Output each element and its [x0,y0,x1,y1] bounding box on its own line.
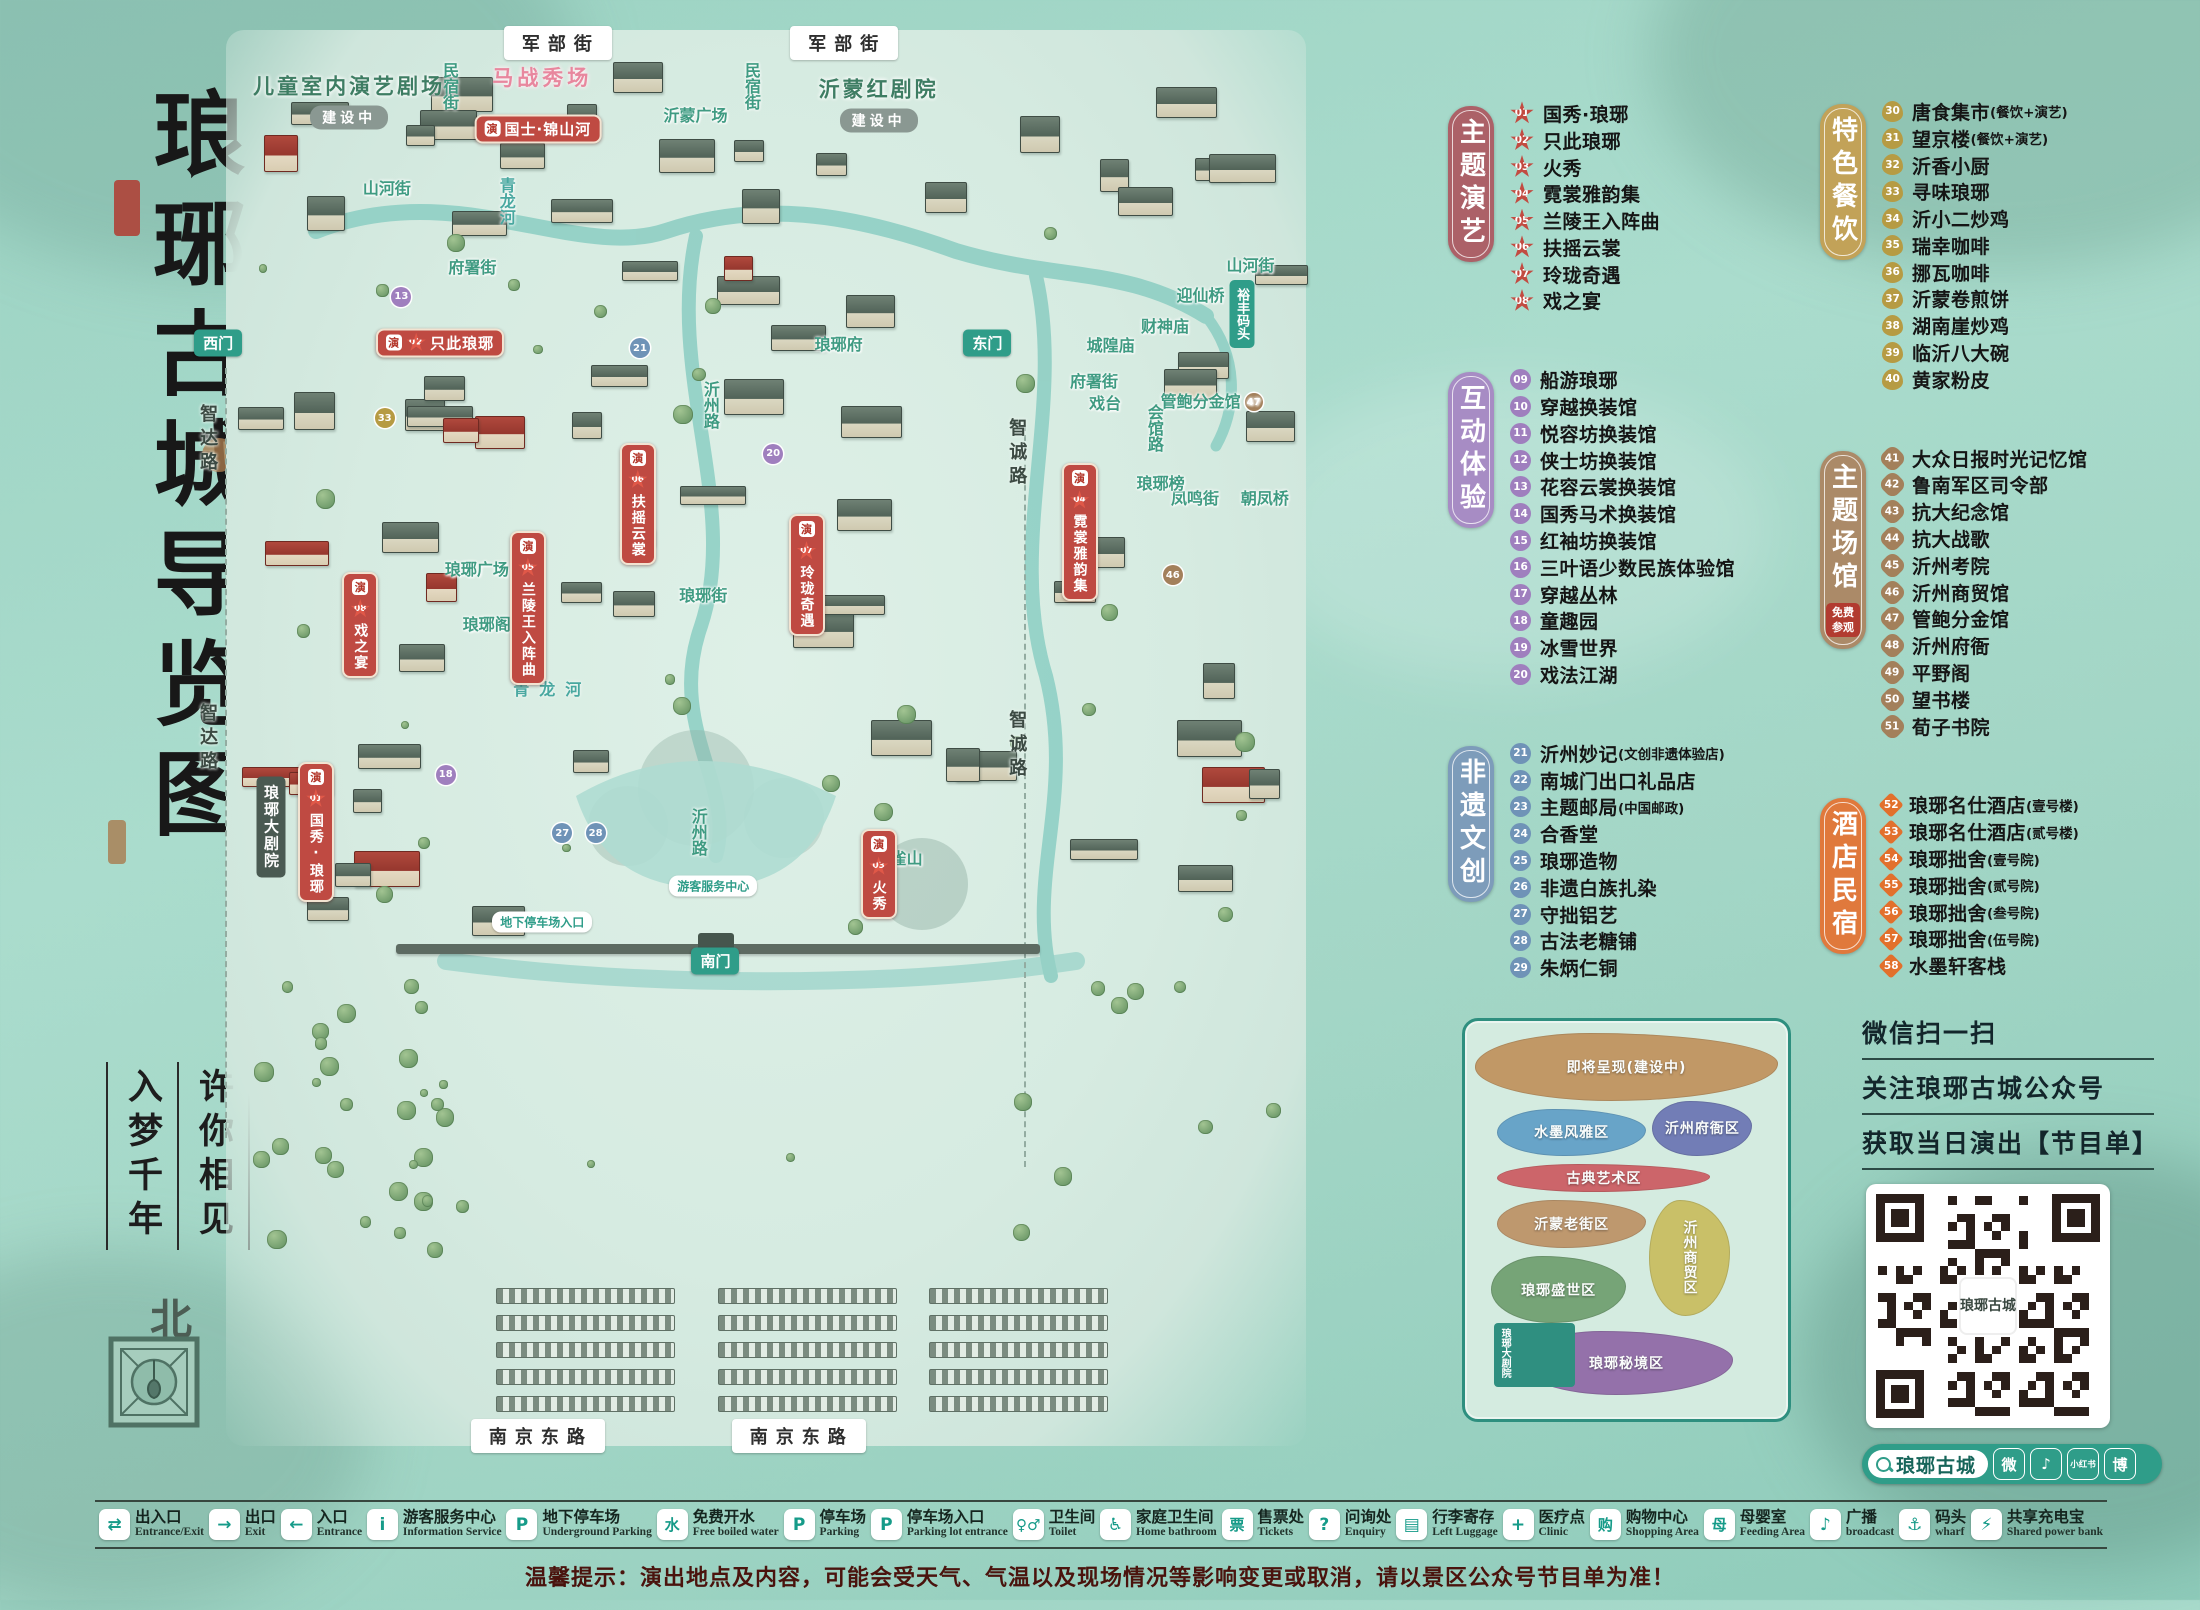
poi-item: 13花容云裳换装馆 [1510,474,1796,501]
poi-name: 朱炳仁铜 [1540,954,1618,981]
poi-number: 50 [1885,693,1900,705]
poi-number: 27 [1513,908,1528,920]
poi-name-paren: (贰号院) [1987,875,2040,895]
qr-cell [2089,1354,2098,1363]
qr-cell [2001,1354,2010,1363]
qr-cell [2010,1266,2019,1275]
qr-cell [2028,1205,2037,1214]
poi-item: 22南城门出口礼品店 [1510,767,1796,794]
poi-number: 54 [1884,853,1899,865]
qr-cell [1896,1346,1905,1355]
qr-cell [2080,1293,2089,1302]
qr-cell [1878,1284,1887,1293]
qr-cell [2045,1310,2054,1319]
show-name: 火秀 [869,880,889,912]
qr-cell [2010,1398,2019,1407]
poi-number: 16 [1513,561,1528,573]
qr-cell [2019,1381,2028,1390]
qr-cell [1957,1346,1966,1355]
poi-name: 非遗白族扎染 [1540,874,1657,901]
legend-label-en: Underground Parking [542,1525,651,1540]
poi-number: 17 [1513,588,1528,600]
map-label-banner-v: 演05兰陵王入阵曲 [510,531,546,685]
qr-cell [1904,1310,1913,1319]
qr-cell [2080,1398,2089,1407]
poi-name: 红袖坊换装馆 [1540,527,1657,554]
qr-cell [2010,1363,2019,1372]
qr-cell [1922,1275,1931,1284]
qr-cell [2063,1266,2072,1275]
poi-number: 49 [1885,667,1900,679]
performance-badge: 演 [1072,470,1088,486]
qr-cell [2054,1407,2063,1416]
legend-clinic-icon: + [1503,1509,1534,1540]
building-block [742,189,779,224]
qr-cell [2019,1266,2028,1275]
qr-cell [2010,1258,2019,1267]
map-label-road-pill: 军部街 [790,26,898,60]
qr-cell [2036,1346,2045,1355]
performance-badge: 演 [630,450,646,466]
show-name: 国秀·琅琊 [306,813,326,895]
map-label-banner-h: 演国士·锦山河 [475,114,602,143]
poi-item: 08戏之宴 [1510,288,1796,315]
qr-cell [2072,1354,2081,1363]
qr-cell [1948,1275,1957,1284]
qr-cell [2054,1354,2063,1363]
qr-cell [2019,1240,2028,1249]
qr-cell [2054,1319,2063,1328]
qr-cell [1992,1214,2001,1223]
legend-text: 停车场Parking [820,1510,867,1540]
qr-cell [2019,1310,2028,1319]
qr-cell [1975,1390,1984,1399]
qr-cell [1992,1346,2001,1355]
legend-text: 免费开水Free boiled water [693,1510,779,1540]
qr-cell [1940,1363,1949,1372]
map-label-place: 沂蒙广场 [663,102,727,126]
qr-cell [1931,1390,1940,1399]
tree [316,489,335,508]
qr-cell [1931,1363,1940,1372]
qr-cell [1940,1337,1949,1346]
qr-cell [2063,1372,2072,1381]
qr-cell [2045,1398,2054,1407]
legend-item: ⇄出入口Entrance/Exit [99,1509,204,1540]
qr-cell [2036,1354,2045,1363]
qr-cell [2028,1346,2037,1355]
weibo-icon: 博 [2104,1448,2136,1480]
qr-cell [1940,1266,1949,1275]
qr-cell [1922,1293,1931,1302]
legend-text: 家庭卫生间Home bathroom [1136,1510,1217,1540]
qr-cell [1922,1354,1931,1363]
free-visit-seal: 免费参观 [1826,603,1860,637]
qr-cell [2045,1372,2054,1381]
qr-cell [2045,1302,2054,1311]
qr-cell [1940,1398,1949,1407]
poi-number-badge: 40 [1882,369,1903,390]
qr-cell [2010,1214,2019,1223]
qr-cell [1975,1372,1984,1381]
building-block [1178,865,1232,892]
poi-number: 08 [1515,295,1530,307]
qr-cell [1922,1328,1931,1337]
qr-cell [1948,1310,1957,1319]
qr-cell [1992,1231,2001,1240]
poi-number-badge: 12 [1510,450,1531,471]
qr-cell [2072,1328,2081,1337]
tree [312,1078,321,1087]
qr-cell [1878,1266,1887,1275]
poi-name: 琅琊拙舍 [1909,925,1987,952]
poi-number-badge: 36 [1882,262,1903,283]
legend-item: ?问询处Enquiry [1309,1509,1392,1540]
qr-cell [1931,1240,1940,1249]
poi-item: 53琅琊名仕酒店(贰号楼) [1882,818,2192,845]
poi-item: 47管鲍分金馆 [1882,606,2192,633]
qr-cell [1948,1293,1957,1302]
qr-cell [1887,1275,1896,1284]
map-label-banner-v: 演04霓裳雅韵集 [1062,463,1098,601]
inset-zone-name: 沂州商贸区 [1679,1220,1699,1295]
qr-cell [1975,1381,1984,1390]
map-label-place: 琅琊榜 [1137,470,1185,494]
poi-item: 49平野阁 [1882,659,2192,686]
map-label-road-vert: 智达路 [194,703,220,775]
map-label-place: 戏台 [1089,390,1121,414]
qr-cell [2045,1337,2054,1346]
poi-item: 01国秀·琅琊 [1510,100,1796,127]
legend-broadcast-icon: ♪ [1810,1509,1841,1540]
poi-number: 34 [1885,213,1900,225]
legend-parking-icon: P [784,1509,815,1540]
qr-cell [1913,1249,1922,1258]
building-block [264,135,298,172]
poi-number-badge: 13 [1510,476,1531,497]
poi-item: 03火秀 [1510,154,1796,181]
qr-cell [1966,1346,1975,1355]
qr-cell [2019,1363,2028,1372]
qr-cell [2036,1275,2045,1284]
section-tag: 主题演艺 [1448,106,1494,262]
legend-label-zh: 出口 [245,1510,276,1525]
map-label-white-pill: 地下停车场入口 [492,911,592,932]
poi-item: 44抗大战歌 [1882,525,2192,552]
poi-name: 扶摇云裳 [1543,234,1621,261]
poi-item: 52琅琊名仕酒店(壹号楼) [1882,792,2192,819]
poi-item: 18童趣园 [1510,608,1796,635]
poi-item: 50望书楼 [1882,686,2192,713]
tree [1198,1120,1213,1135]
qr-cell [1931,1222,1940,1231]
qr-cell [1922,1302,1931,1311]
qr-cell [1904,1284,1913,1293]
performance-badge: 演 [520,538,536,554]
tree [259,264,268,273]
poi-item: 07玲珑奇遇 [1510,261,1796,288]
poi-name: 南城门出口礼品店 [1540,767,1696,794]
qr-cell [1957,1363,1966,1372]
poi-name: 合香堂 [1540,820,1599,847]
qr-cell [2028,1293,2037,1302]
poi-item: 14国秀马术换装馆 [1510,500,1796,527]
qr-cell [1984,1214,1993,1223]
legend-label-en: Tickets [1258,1525,1305,1540]
poi-name-paren: (中国邮政) [1618,797,1684,817]
qr-cell [2036,1363,2045,1372]
performance-badge: 演 [485,121,501,137]
under-construction-tag: 建设中 [310,106,388,130]
poi-number: 42 [1885,479,1900,491]
qr-cell [1966,1214,1975,1223]
qr-cell [1957,1381,1966,1390]
poi-number: 02 [1515,134,1530,146]
slogan-column-left: 入梦千年 [106,1062,177,1250]
map-label-street-h: 琅琊街 [679,582,727,606]
poi-number: 37 [1885,293,1900,305]
poi-number-badge: 21 [1510,743,1531,764]
qr-cell [1878,1302,1887,1311]
building-block [1203,663,1235,699]
qr-cell [2080,1275,2089,1284]
qr-cell [1931,1196,1940,1205]
qr-cell [1948,1328,1957,1337]
poi-name: 三叶语少数民族体验馆 [1540,554,1735,581]
poi-name-paren: (文创非遗体验店) [1618,743,1725,763]
qr-cell [1931,1231,1940,1240]
poi-name: 火秀 [1543,154,1582,181]
poi-number: 15 [1513,535,1528,547]
qr-cell [1966,1205,1975,1214]
qr-cell [1940,1258,1949,1267]
legend-label-zh: 售票处 [1258,1510,1305,1525]
qr-cell [2019,1337,2028,1346]
parking-row [929,1288,1109,1304]
qr-cell [2019,1346,2028,1355]
poi-number: 09 [1513,374,1528,386]
legend-label-zh: 地下停车场 [542,1510,651,1525]
legend-label-zh: 入口 [317,1510,362,1525]
parking-row [496,1369,676,1385]
building-block [572,412,601,439]
building-block [1177,720,1241,757]
legend-item: ♪广播broadcast [1810,1509,1894,1540]
qr-cell [2072,1319,2081,1328]
tree [253,1151,270,1168]
inset-zone-name: 沂蒙老街区 [1534,1214,1609,1234]
show-name: 兰陵王入阵曲 [518,582,538,678]
section-tag: 主题场馆免费参观 [1820,451,1866,649]
map-label-badge: 33 [375,408,395,428]
poi-number-badge: 44 [1878,524,1908,554]
xiaohongshu-icon: 小红书 [2067,1448,2099,1480]
performance-badge: 演 [871,836,887,852]
poi-item: 16三叶语少数民族体验馆 [1510,554,1796,581]
poi-name: 冰雪世界 [1540,634,1618,661]
inset-zone: 沂蒙老街区 [1497,1200,1646,1248]
qr-cell [2045,1346,2054,1355]
qr-cell [2036,1205,2045,1214]
tree [397,1101,415,1119]
qr-cell [2072,1310,2081,1319]
legend-label-en: Clinic [1539,1525,1586,1540]
qr-cell [2010,1249,2019,1258]
qr-cell [1940,1328,1949,1337]
poi-name: 琅琊拙舍 [1909,845,1987,872]
tree [394,1227,405,1238]
qr-cell [2001,1222,2010,1231]
qr-cell [2072,1284,2081,1293]
inset-theater-label: 琅琊大剧院 [1494,1323,1575,1387]
qr-cell [1904,1328,1913,1337]
qr-cell [1948,1407,1957,1416]
poi-name: 穿越换装馆 [1540,393,1638,420]
legend-text: 卫生间Toilet [1049,1510,1096,1540]
qr-cell [1992,1249,2001,1258]
tree [315,1037,327,1049]
poi-name-paren: (餐饮+演艺) [1990,101,2068,121]
poi-name: 沂州考院 [1912,552,1990,579]
building-block [622,261,678,281]
qr-cell [1975,1346,1984,1355]
poi-item: 36挪瓦咖啡 [1882,259,2192,286]
tree [320,1057,339,1076]
qr-cell [2072,1337,2081,1346]
qr-cell [2063,1293,2072,1302]
qr-cell [1948,1284,1957,1293]
tree [415,1001,428,1014]
building-block [1020,116,1060,154]
building-block [500,143,545,169]
poi-number: 40 [1885,373,1900,385]
qr-cell [2080,1337,2089,1346]
tree [399,1049,418,1068]
map-label-banner-v: 演01国秀·琅琊 [298,762,334,902]
inset-zone-name: 古典艺术区 [1566,1168,1641,1188]
qr-cell [1922,1337,1931,1346]
qr-cell [1904,1249,1913,1258]
poi-name: 黄家粉皮 [1912,366,1990,393]
poi-number-badge: 47 [1878,604,1908,634]
poi-name: 抗大战歌 [1912,525,1990,552]
poi-name: 挪瓦咖啡 [1912,259,1990,286]
tree [315,1147,332,1164]
tree [1082,703,1096,717]
poi-name: 唐食集市 [1912,98,1990,125]
qr-cell [1966,1337,1975,1346]
poi-number-badge: 17 [1510,584,1531,605]
qr-cell [1975,1196,1984,1205]
legend-text: 售票处Tickets [1258,1510,1305,1540]
qr-cell [1966,1266,1975,1275]
show-name: 戏之宴 [350,623,370,671]
douyin-icon: ♪ [2030,1448,2062,1480]
poi-number-badge: 52 [1878,792,1903,817]
qr-cell [1984,1381,1993,1390]
qr-cell [1904,1258,1913,1267]
qr-cell [1966,1231,1975,1240]
section-tag-label: 非遗文创 [1453,758,1490,890]
legend-toilet-icon: ♀♂ [1013,1509,1044,1540]
qr-cell [2036,1310,2045,1319]
poi-number-badge: 08 [1510,289,1534,313]
poi-number-badge: 46 [1878,577,1908,607]
map-label-theater-v: 琅琊大剧院 [257,777,286,878]
qr-cell [1904,1275,1913,1284]
map-label-street-h: 山河街 [363,175,411,199]
poi-name: 瑞幸咖啡 [1912,232,1990,259]
legend-text: 医疗点Clinic [1539,1510,1586,1540]
poi-number-badge: 01 [1510,101,1534,125]
qr-cell [1878,1258,1887,1267]
qr-cell [2019,1407,2028,1416]
qr-cell [1931,1214,1940,1223]
poi-name: 管鲍分金馆 [1912,605,2010,632]
qr-cell [2028,1398,2037,1407]
qr-cell [2036,1284,2045,1293]
qr-cell [1957,1222,1966,1231]
qr-cell [1957,1196,1966,1205]
parking-row [718,1315,898,1331]
legend-label-en: Feeding Area [1740,1525,1805,1540]
poi-number-badge: 29 [1510,957,1531,978]
poi-name: 古法老糖铺 [1540,927,1638,954]
poi-number: 14 [1513,508,1528,520]
show-name: 只此琅琊 [430,332,494,353]
qr-cell [2054,1372,2063,1381]
poi-item: 54琅琊拙舍(壹号院) [1882,845,2192,872]
poi-number: 24 [1513,828,1528,840]
qr-cell [1984,1390,1993,1399]
tree [360,1216,372,1228]
qr-cell [1878,1328,1887,1337]
poi-name: 平野阁 [1912,659,1971,686]
qr-cell [1975,1205,1984,1214]
qr-cell [1940,1275,1949,1284]
poi-item: 57琅琊拙舍(伍号院) [1882,926,2192,953]
show-number: 05 [518,558,538,578]
qr-cell [2028,1390,2037,1399]
tree [1014,1093,1032,1111]
poi-item: 45沂州考院 [1882,552,2192,579]
qr-cell [2019,1354,2028,1363]
poi-name: 沂香小厨 [1912,152,1990,179]
qr-cell [1992,1398,2001,1407]
qr-cell [2054,1249,2063,1258]
parking-row [496,1396,676,1412]
map-label-street-h: 府署街 [1070,368,1118,392]
qr-cell [1940,1284,1949,1293]
qr-cell [2001,1266,2010,1275]
poi-number: 41 [1885,452,1900,464]
qr-cell [1887,1354,1896,1363]
legend-text: 出口Exit [245,1510,276,1540]
qr-cell [2019,1284,2028,1293]
tree [337,1004,356,1023]
poi-number-badge: 10 [1510,396,1531,417]
qr-cell [2001,1231,2010,1240]
poi-number-badge: 25 [1510,850,1531,871]
legend-label-en: Entrance [317,1525,362,1540]
qr-cell [2010,1354,2019,1363]
qr-cell [1966,1222,1975,1231]
legend-tickets-icon: 票 [1222,1509,1253,1540]
qr-cell [1984,1398,1993,1407]
qr-cell [1975,1407,1984,1416]
qr-cell [2036,1258,2045,1267]
qr-cell [2063,1381,2072,1390]
